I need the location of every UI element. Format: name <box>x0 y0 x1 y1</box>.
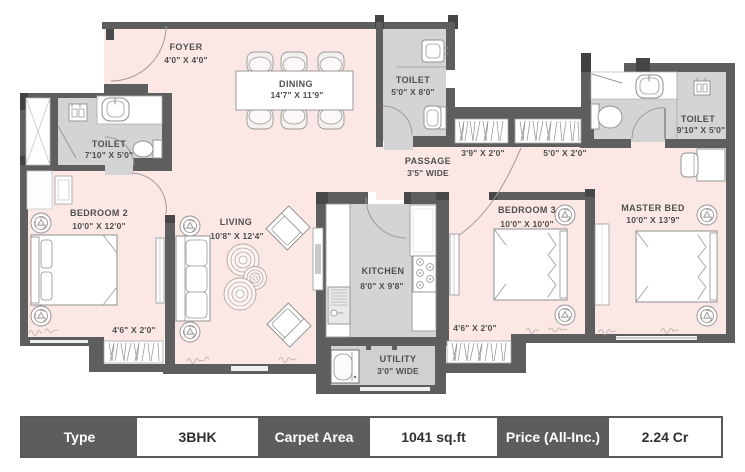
svg-text:10'0" X 10'0": 10'0" X 10'0" <box>500 219 553 229</box>
svg-text:4'6" X 2'0": 4'6" X 2'0" <box>453 323 497 333</box>
svg-text:9'10" X 5'0": 9'10" X 5'0" <box>677 125 726 135</box>
svg-text:KITCHEN: KITCHEN <box>362 266 405 276</box>
svg-text:LIVING: LIVING <box>220 217 252 227</box>
svg-text:5'0" X 8'0": 5'0" X 8'0" <box>391 87 435 97</box>
svg-text:4'0" X 4'0": 4'0" X 4'0" <box>164 55 208 65</box>
svg-text:8'0" X 9'8": 8'0" X 9'8" <box>360 281 404 291</box>
svg-text:3'0" WIDE: 3'0" WIDE <box>377 366 419 376</box>
svg-text:10'0" X 13'9": 10'0" X 13'9" <box>626 215 679 225</box>
svg-text:3'5" WIDE: 3'5" WIDE <box>407 168 449 178</box>
svg-text:PASSAGE: PASSAGE <box>405 156 451 166</box>
svg-text:DINING: DINING <box>279 79 313 89</box>
svg-text:MASTER BED: MASTER BED <box>621 203 685 213</box>
svg-text:7'10" X 5'0": 7'10" X 5'0" <box>85 150 134 160</box>
svg-text:BEDROOM 3: BEDROOM 3 <box>498 205 556 215</box>
svg-text:5'0" X 2'0": 5'0" X 2'0" <box>543 148 587 158</box>
svg-text:FOYER: FOYER <box>169 42 202 52</box>
svg-text:BEDROOM 2: BEDROOM 2 <box>70 208 128 218</box>
svg-text:TOILET: TOILET <box>92 139 126 149</box>
svg-text:10'8" X 12'4": 10'8" X 12'4" <box>210 231 263 241</box>
svg-text:14'7" X 11'9": 14'7" X 11'9" <box>271 90 324 100</box>
svg-text:TOILET: TOILET <box>396 75 430 85</box>
svg-text:10'0" X 12'0": 10'0" X 12'0" <box>72 221 125 231</box>
svg-text:3'9" X 2'0": 3'9" X 2'0" <box>461 148 505 158</box>
svg-text:4'6" X 2'0": 4'6" X 2'0" <box>112 325 156 335</box>
svg-text:UTILITY: UTILITY <box>380 354 417 364</box>
svg-text:TOILET: TOILET <box>681 114 715 124</box>
